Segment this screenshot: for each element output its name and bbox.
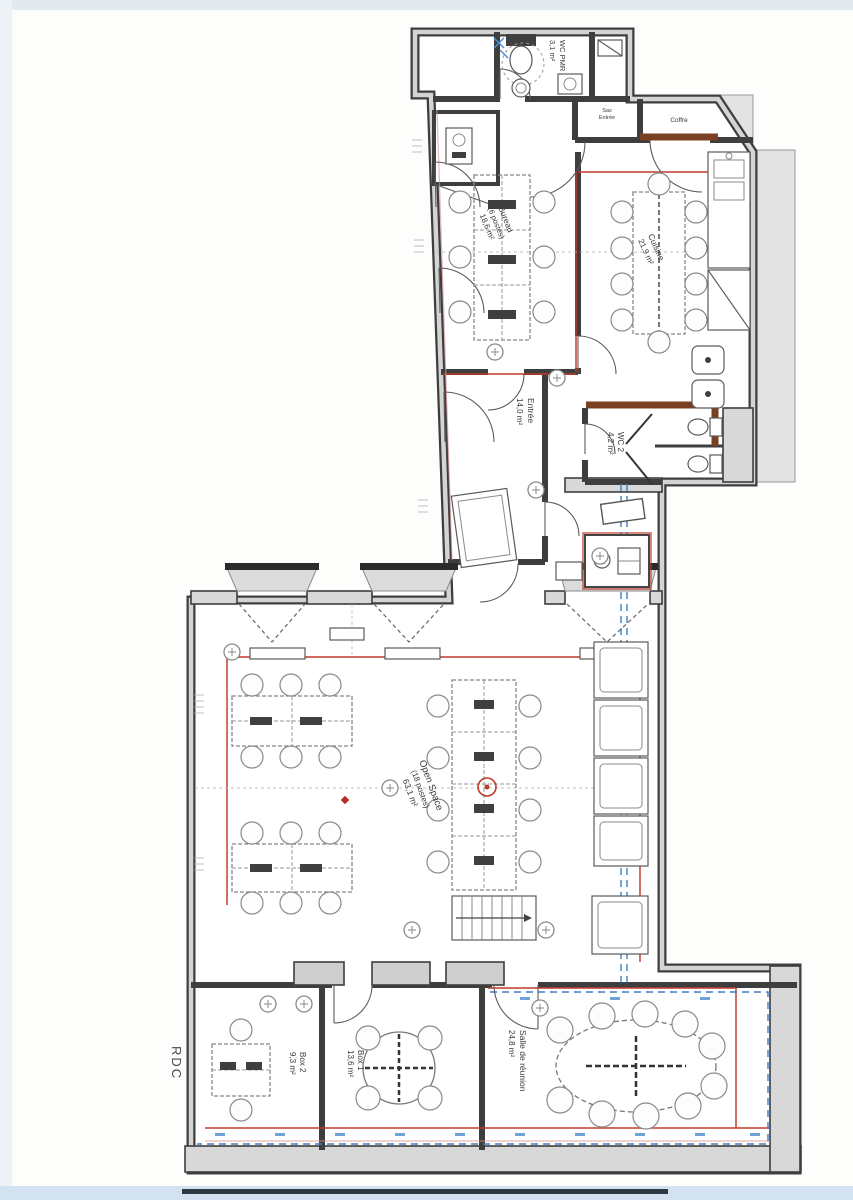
room-name: WC 2 (616, 432, 625, 453)
room-area: 4,2 m² (606, 432, 615, 455)
room-area: 14,0 m² (515, 398, 524, 425)
closet-appliance (446, 128, 472, 164)
floor-label: RDC (169, 1046, 184, 1080)
room-name: Entrée (526, 398, 536, 423)
room-name-2: Entrée (599, 115, 615, 121)
label-coffre: Coffre (670, 117, 688, 124)
openspace-cluster-a (232, 674, 352, 768)
label-wc2: WC 2 4,2 m² (606, 432, 625, 455)
room-area: 13,6 m² (346, 1050, 355, 1077)
room-name: WC PMR (558, 40, 567, 72)
openspace-cluster-b (232, 822, 352, 914)
room-area: 3,1 m² (548, 40, 557, 62)
bureau-desks (449, 175, 555, 340)
room-name: Box 2 (298, 1052, 307, 1073)
label-box2: Box 2 9,3 m² (288, 1052, 307, 1075)
room-area: 9,3 m² (288, 1052, 297, 1075)
room-name: Box 1 (356, 1050, 365, 1071)
stair-platform (452, 896, 536, 940)
label-floor-rdc: RDC (169, 1046, 184, 1080)
entree-furniture (451, 488, 516, 567)
room-area: 24,8 m² (507, 1030, 516, 1057)
floor-plan-page: WC PMR 3,1 m² Bureau (6 postes) 18,6 m² … (0, 0, 853, 1200)
room-name: Sas (602, 108, 612, 114)
room-name: Salle de réunion (518, 1030, 528, 1092)
floor-plan-svg: WC PMR 3,1 m² Bureau (6 postes) 18,6 m² … (0, 0, 853, 1200)
openspace-cabinets (592, 642, 648, 954)
